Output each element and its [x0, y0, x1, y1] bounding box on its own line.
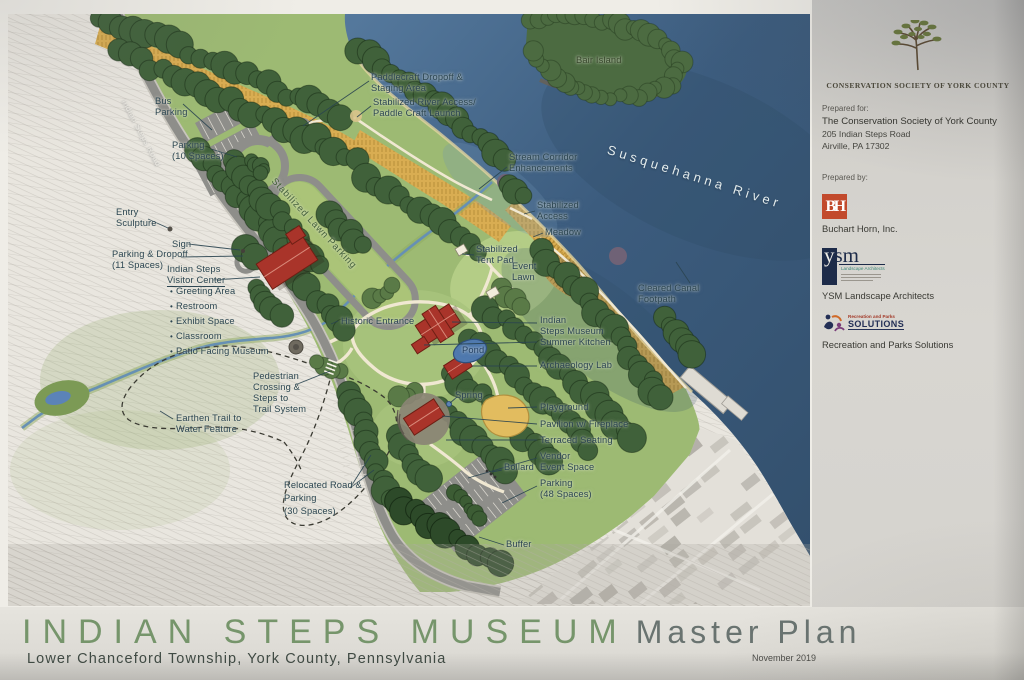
- firm-ysm: ysm Landscape Architects YSM Landscape A…: [822, 246, 1014, 301]
- prepared-for-city: Airville, PA 17302: [822, 141, 1014, 151]
- master-plan-photo: NORTH Scale: 1" = 50' 0' 50' 100' 150' 2…: [0, 0, 1024, 680]
- title-block: INDIAN STEPS MUSEUMMaster Plan Lower Cha…: [0, 607, 1024, 680]
- info-panel: CONSERVATION SOCIETY OF YORK COUNTY Prep…: [812, 0, 1024, 608]
- prepared-for-label: Prepared for:: [822, 104, 1014, 113]
- ysm-logo: ysm Landscape Architects: [822, 246, 1014, 286]
- ysm-logo-sub: Landscape Architects: [841, 266, 885, 271]
- firm-name-rps: Recreation and Parks Solutions: [822, 339, 1014, 350]
- rps-figures-icon: [822, 313, 846, 333]
- conservation-society-tree-logo: [822, 20, 1014, 72]
- prepared-for-name: The Conservation Society of York County: [822, 116, 1014, 127]
- prepared-for-street: 205 Indian Steps Road: [822, 129, 1014, 139]
- plan-date: November 2019: [752, 653, 816, 663]
- firm-name-bh: Buchart Horn, Inc.: [822, 223, 1014, 234]
- rps-logo-text: SOLUTIONS: [848, 319, 904, 330]
- org-name: CONSERVATION SOCIETY OF YORK COUNTY: [822, 81, 1014, 90]
- firm-buchart-horn: BH Buchart Horn, Inc.: [822, 194, 1014, 234]
- plan-title: INDIAN STEPS MUSEUM: [22, 613, 628, 651]
- plan-subtitle: Master Plan: [636, 614, 862, 650]
- bh-logo: BH: [822, 194, 847, 219]
- firm-name-ysm: YSM Landscape Architects: [822, 290, 1014, 301]
- plan-location: Lower Chanceford Township, York County, …: [27, 651, 446, 667]
- rps-logo: Recreation and Parks SOLUTIONS: [822, 313, 1014, 335]
- firm-rps: Recreation and Parks SOLUTIONS Recreatio…: [822, 313, 1014, 350]
- map-illustration: [0, 0, 888, 680]
- prepared-by-label: Prepared by:: [822, 173, 1014, 182]
